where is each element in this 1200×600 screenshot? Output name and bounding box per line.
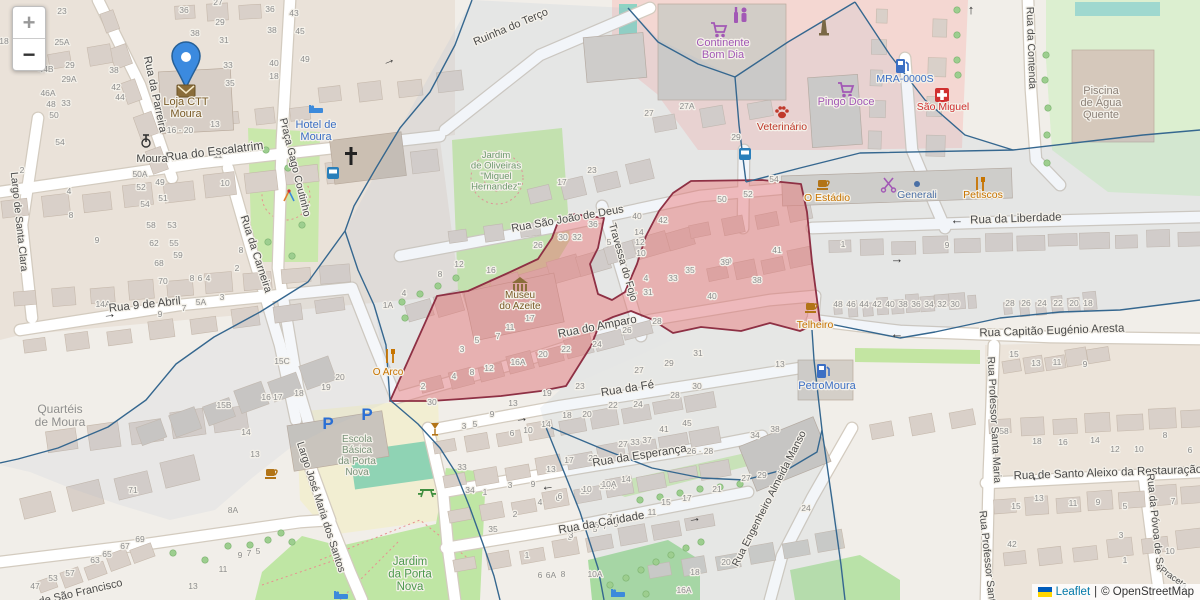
house-number: 63	[90, 555, 100, 565]
house-number: 12	[454, 259, 464, 269]
house-number: 40	[632, 211, 642, 221]
house-number: 8A	[228, 505, 239, 515]
house-number: 40	[885, 299, 895, 309]
house-number: 24	[633, 399, 643, 409]
house-number: 21	[712, 484, 722, 494]
house-number: 38	[770, 424, 780, 434]
house-number: 26	[533, 240, 543, 250]
house-number: 2	[421, 381, 426, 391]
house-number: 30	[427, 397, 437, 407]
poi-label: Veterinário	[757, 121, 807, 133]
house-number: 18	[269, 71, 279, 81]
house-number: 10	[220, 178, 230, 188]
poi-label: O Arco	[373, 367, 404, 378]
house-number: 7	[182, 303, 187, 313]
house-number: 38	[190, 28, 200, 38]
house-number: 27	[618, 439, 628, 449]
house-number: 48	[46, 99, 56, 109]
house-number: 42	[111, 82, 121, 92]
house-number: 68	[154, 258, 164, 268]
house-number: 7	[1171, 496, 1176, 506]
house-number: 19	[321, 382, 331, 392]
poi-label: Moura	[170, 108, 202, 120]
house-number: 29	[757, 470, 767, 480]
house-number: 27	[634, 365, 644, 375]
house-number: 17	[525, 313, 535, 323]
house-number: 1	[1123, 555, 1128, 565]
house-number: 3	[462, 421, 467, 431]
poi-label: O Estádio	[804, 192, 850, 204]
house-number: 5	[473, 419, 478, 429]
house-number: 10	[523, 425, 533, 435]
house-number: 5	[256, 546, 261, 556]
house-number: 5	[475, 335, 480, 345]
house-number: 35	[488, 524, 498, 534]
house-number: 34	[924, 299, 934, 309]
house-number: 69	[135, 534, 145, 544]
house-number: 28	[670, 390, 680, 400]
house-number: 39	[720, 257, 730, 267]
house-number: 6	[510, 428, 515, 438]
house-number: 12	[1110, 444, 1120, 454]
map-viewport[interactable]: PP182325A2929A3346A485044B38424454362729…	[0, 0, 1200, 600]
house-number: 30	[558, 232, 568, 242]
house-number: 11	[1069, 498, 1078, 508]
house-number: 44	[115, 92, 125, 102]
house-number: 20	[538, 349, 548, 359]
house-number: 34	[465, 485, 475, 495]
poi-label: MRA-0000S	[876, 73, 933, 85]
house-number: 11	[219, 564, 228, 574]
svg-text:P: P	[361, 405, 372, 424]
house-number: 27	[213, 0, 223, 7]
house-number: 33	[668, 273, 678, 283]
house-number: 55	[169, 238, 179, 248]
house-number: 7	[496, 331, 501, 341]
house-number: 27	[644, 108, 654, 118]
house-number: 8	[190, 273, 195, 283]
house-number: 46A	[40, 88, 55, 98]
house-number: 29	[215, 17, 225, 27]
poi-label: Hernandez"	[471, 182, 521, 193]
oneway-arrow: →	[102, 305, 117, 321]
house-number: 62	[149, 238, 159, 248]
poi-label: Piscina	[1083, 85, 1119, 97]
house-number: 47	[30, 581, 40, 591]
house-number: 38	[267, 25, 277, 35]
house-number: 38	[109, 65, 119, 75]
house-number: 26 · 28	[687, 446, 714, 456]
poi-label: Petiscos	[963, 189, 1003, 201]
house-number: 22	[1053, 298, 1063, 308]
house-number: 10	[582, 484, 592, 494]
house-number: 5A	[196, 297, 207, 307]
house-number: 13	[775, 359, 785, 369]
medical-cross-icon	[935, 88, 949, 102]
house-number: 13	[508, 398, 518, 408]
house-number: 33	[61, 98, 71, 108]
house-number: 13	[1034, 493, 1044, 503]
house-number: 9	[238, 550, 243, 560]
house-number: 24	[1037, 298, 1047, 308]
house-number: 6	[198, 273, 203, 283]
leaflet-link[interactable]: Leaflet	[1056, 586, 1091, 598]
poi-label: Jardim	[393, 556, 428, 568]
oneway-arrow: →	[891, 251, 904, 266]
house-number: 13	[1031, 358, 1041, 368]
poi-label: Museu	[505, 290, 535, 301]
house-number: 24	[592, 339, 602, 349]
generali-dot-icon	[914, 181, 920, 187]
poi-label: "Miguel	[480, 171, 511, 182]
poi-label: Loja CTT	[163, 96, 209, 108]
house-number: 7	[247, 548, 252, 558]
oneway-arrow: ←	[951, 212, 964, 227]
cup-icon	[805, 303, 817, 313]
house-number: 16A	[510, 357, 525, 367]
poi-label: de Oliveiras	[471, 161, 521, 172]
house-number: 3	[1119, 530, 1124, 540]
poi-label: Escola	[342, 434, 372, 445]
house-number: 33	[630, 437, 640, 447]
poi-label: Nova	[397, 581, 424, 593]
house-number: 17	[557, 177, 567, 187]
house-number: 14	[541, 419, 551, 429]
house-number: 10	[636, 248, 646, 258]
parking-icon: P	[361, 405, 372, 424]
poi-label: Continente	[696, 37, 749, 49]
house-number: 9	[1096, 497, 1101, 507]
house-number: 16 - 20	[167, 125, 194, 135]
house-number: 48	[833, 299, 843, 309]
house-number: 53	[48, 573, 58, 583]
house-number: 20	[335, 372, 345, 382]
house-number: 4	[206, 273, 211, 283]
oneway-arrow: ←	[1030, 469, 1044, 484]
house-number: 1	[525, 550, 530, 560]
house-number: 9	[1083, 359, 1088, 369]
oneway-arrow: ↑	[968, 2, 975, 17]
oneway-arrow: ←	[891, 326, 904, 341]
house-number: 25A	[54, 37, 69, 47]
attribution-separator: |	[1094, 586, 1097, 598]
poi-label: Jardim	[482, 150, 511, 161]
house-number: 1A	[383, 300, 394, 310]
bus-stop-icon	[739, 148, 751, 160]
house-number: 15	[1011, 501, 1021, 511]
house-number: 38	[752, 275, 762, 285]
house-number: 14	[634, 227, 644, 237]
house-number: 8	[470, 367, 475, 377]
house-number: 16A	[676, 585, 691, 595]
house-number: 31	[643, 287, 653, 297]
zoom-out-button[interactable]: −	[13, 39, 45, 70]
house-number: 8	[438, 269, 443, 279]
house-number: 4	[538, 497, 543, 507]
house-number: 10	[1165, 546, 1175, 556]
poi-label: Generali	[897, 189, 937, 201]
house-number: 32	[937, 299, 947, 309]
house-number: 22	[608, 400, 618, 410]
house-number: 11	[506, 322, 515, 332]
poi-label: Moura	[300, 131, 332, 143]
house-number: 70	[158, 276, 168, 286]
poi-label: PetroMoura	[798, 380, 856, 392]
house-number: 8	[561, 569, 566, 579]
house-number: 6A	[546, 570, 557, 580]
poi-label: Básica	[342, 445, 372, 456]
house-number: 12	[484, 363, 494, 373]
zoom-control: + −	[12, 6, 46, 71]
house-number: 20	[582, 409, 592, 419]
house-number: 36	[265, 4, 275, 14]
ukraine-flag-icon	[1038, 587, 1052, 597]
house-number: 18	[0, 36, 9, 46]
house-number: 52	[743, 189, 753, 199]
house-number: 6	[558, 491, 563, 501]
house-number: 10A	[587, 569, 602, 579]
house-number: 33	[223, 60, 233, 70]
house-number: 12	[635, 237, 645, 247]
house-number: 3	[460, 344, 465, 354]
cup-icon	[817, 180, 829, 190]
house-number: 40	[707, 291, 717, 301]
house-number: 10	[1134, 444, 1144, 454]
house-number: 45	[682, 418, 692, 428]
house-number: 29	[664, 358, 674, 368]
house-number: 67	[120, 541, 130, 551]
house-number: 2	[235, 263, 240, 273]
house-number: 18	[690, 567, 700, 577]
poi-label: Telheiro	[797, 319, 834, 331]
house-number: 22	[561, 344, 571, 354]
house-number: 4	[402, 288, 407, 298]
poi-label: Pingo Doce	[818, 96, 875, 108]
poi-label: do Azeite	[499, 301, 541, 312]
house-number: 4	[644, 273, 649, 283]
house-number: 29	[65, 60, 75, 70]
poi-label: Quartéis	[37, 402, 82, 416]
house-number: 14	[241, 427, 251, 437]
house-number: 11	[648, 507, 657, 517]
house-number: 17	[682, 493, 692, 503]
house-number: 1	[483, 487, 488, 497]
house-number: 18	[562, 410, 572, 420]
house-number: 3	[220, 292, 225, 302]
poi-label: Moura	[136, 153, 168, 165]
house-number: 6	[538, 570, 543, 580]
zoom-in-button[interactable]: +	[13, 7, 45, 39]
house-number: 9	[945, 240, 950, 250]
house-number: 19	[542, 388, 552, 398]
house-number: 37	[642, 435, 652, 445]
house-number: 24	[801, 503, 811, 513]
house-number: 13	[188, 581, 198, 591]
house-number: 50	[717, 194, 727, 204]
poi-label: de Água	[1081, 96, 1123, 109]
house-number: 41	[659, 424, 669, 434]
house-number: 14	[1090, 435, 1100, 445]
house-number: 8	[239, 245, 244, 255]
house-number: 52	[136, 182, 146, 192]
house-number: 13	[250, 449, 260, 459]
house-number: 16	[1058, 437, 1068, 447]
house-number: 6	[1188, 445, 1193, 455]
house-number: 15	[1009, 349, 1019, 359]
house-number: 71	[128, 485, 138, 495]
house-number: 35	[685, 265, 695, 275]
poi-label: Hotel de	[296, 119, 337, 131]
attribution-bar: Leaflet | © OpenStreetMap	[1032, 584, 1200, 600]
house-number: 27	[741, 473, 751, 483]
house-number: 9	[490, 409, 495, 419]
house-number: 36	[179, 5, 189, 15]
house-number: 31	[219, 35, 229, 45]
house-number: 29A	[61, 74, 76, 84]
house-number: 8	[1163, 430, 1168, 440]
house-number: 43	[289, 8, 299, 18]
house-number: 31	[693, 348, 703, 358]
poi-label: Bom Dia	[702, 49, 745, 61]
house-number: 49	[155, 177, 165, 187]
house-number: 34	[750, 430, 760, 440]
house-number: 51	[158, 193, 168, 203]
house-number: 18	[1032, 436, 1042, 446]
house-number: 1	[841, 239, 846, 249]
house-number: 54	[55, 137, 65, 147]
house-number: 57	[65, 568, 75, 578]
poi-label: de Moura	[35, 415, 86, 429]
house-number: 65	[102, 549, 112, 559]
house-number: 29	[731, 132, 741, 142]
house-number: 54	[769, 174, 779, 184]
house-number: 53	[167, 220, 177, 230]
svg-text:P: P	[322, 414, 333, 433]
house-number: 44	[859, 299, 869, 309]
oneway-arrow: →	[514, 409, 529, 426]
poi-label: da Porta	[388, 569, 432, 581]
parking-icon: P	[322, 414, 333, 433]
house-number: 59	[173, 250, 183, 260]
house-number: 18	[294, 388, 304, 398]
cup-icon	[265, 469, 277, 479]
house-number: 13	[210, 119, 220, 129]
house-number: 36	[911, 299, 921, 309]
house-number: 23	[57, 6, 67, 16]
house-number: 27A	[679, 101, 694, 111]
house-number: 23	[587, 165, 597, 175]
house-number: 9	[531, 479, 536, 489]
house-number: 8	[69, 210, 74, 220]
poi-label: da Porta	[338, 456, 376, 467]
house-number: 40	[269, 58, 279, 68]
house-number: 33	[457, 462, 467, 472]
house-number: 42	[658, 215, 668, 225]
house-number: 32	[572, 232, 582, 242]
house-number: 10A	[601, 479, 616, 489]
house-number: 14	[621, 474, 631, 484]
house-number: 42	[1007, 539, 1017, 549]
oneway-arrow: →	[687, 509, 702, 526]
house-number: 35	[225, 78, 235, 88]
house-number: 54	[140, 199, 150, 209]
house-number: 16	[486, 265, 496, 275]
house-number: 50	[49, 110, 59, 120]
house-number: 18	[1083, 298, 1093, 308]
house-number: 16 17	[261, 392, 283, 402]
house-number: 30	[950, 299, 960, 309]
house-number: 4	[452, 371, 457, 381]
house-number: 30	[692, 381, 702, 391]
poi-label: Quente	[1083, 109, 1119, 121]
osm-copyright[interactable]: © OpenStreetMap	[1101, 586, 1194, 598]
house-number: 15C	[274, 356, 290, 366]
house-number: 41	[772, 245, 782, 255]
poi-label: São Miguel	[917, 101, 970, 113]
house-number: 5	[1123, 501, 1128, 511]
house-number: 20	[1069, 298, 1079, 308]
house-number: 28	[652, 316, 662, 326]
house-number: 15	[661, 497, 671, 507]
house-number: 11	[1053, 357, 1062, 367]
house-number: 17	[564, 455, 574, 465]
house-number: 46	[846, 299, 856, 309]
house-number: 45	[295, 26, 305, 36]
house-number: 58	[146, 220, 156, 230]
house-number: 28	[1005, 298, 1015, 308]
oneway-arrow: ←	[540, 477, 555, 494]
house-number: 38	[898, 299, 908, 309]
house-number: 3	[508, 480, 513, 490]
house-number: 4	[67, 186, 72, 196]
house-number: 49	[300, 54, 310, 64]
house-number: 23	[575, 381, 585, 391]
house-number: 15B	[216, 400, 231, 410]
house-number: 9	[95, 235, 100, 245]
bus-stop-icon	[327, 167, 339, 179]
poi-label: Nova	[345, 467, 369, 478]
house-number: 26	[1021, 298, 1031, 308]
house-number: 50A	[132, 169, 147, 179]
map-canvas[interactable]: PP182325A2929A3346A485044B38424454362729…	[0, 0, 1200, 600]
house-number: 42	[872, 299, 882, 309]
house-number: 2	[513, 509, 518, 519]
house-number: 9	[158, 309, 163, 319]
house-number: 13	[546, 464, 556, 474]
